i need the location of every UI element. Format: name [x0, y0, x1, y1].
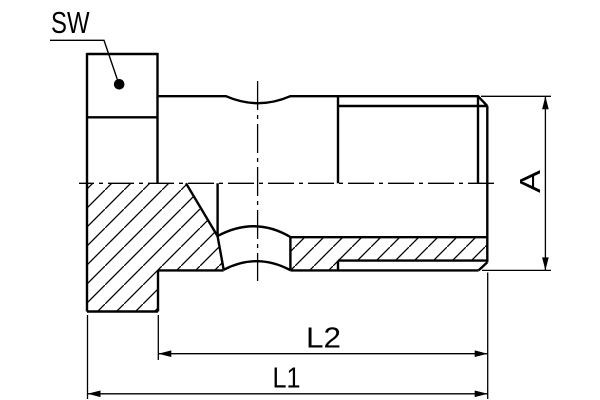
svg-text:L2: L2 [306, 323, 341, 355]
svg-text:L1: L1 [273, 363, 301, 395]
svg-text:SW: SW [51, 5, 90, 40]
svg-text:A: A [515, 169, 547, 193]
